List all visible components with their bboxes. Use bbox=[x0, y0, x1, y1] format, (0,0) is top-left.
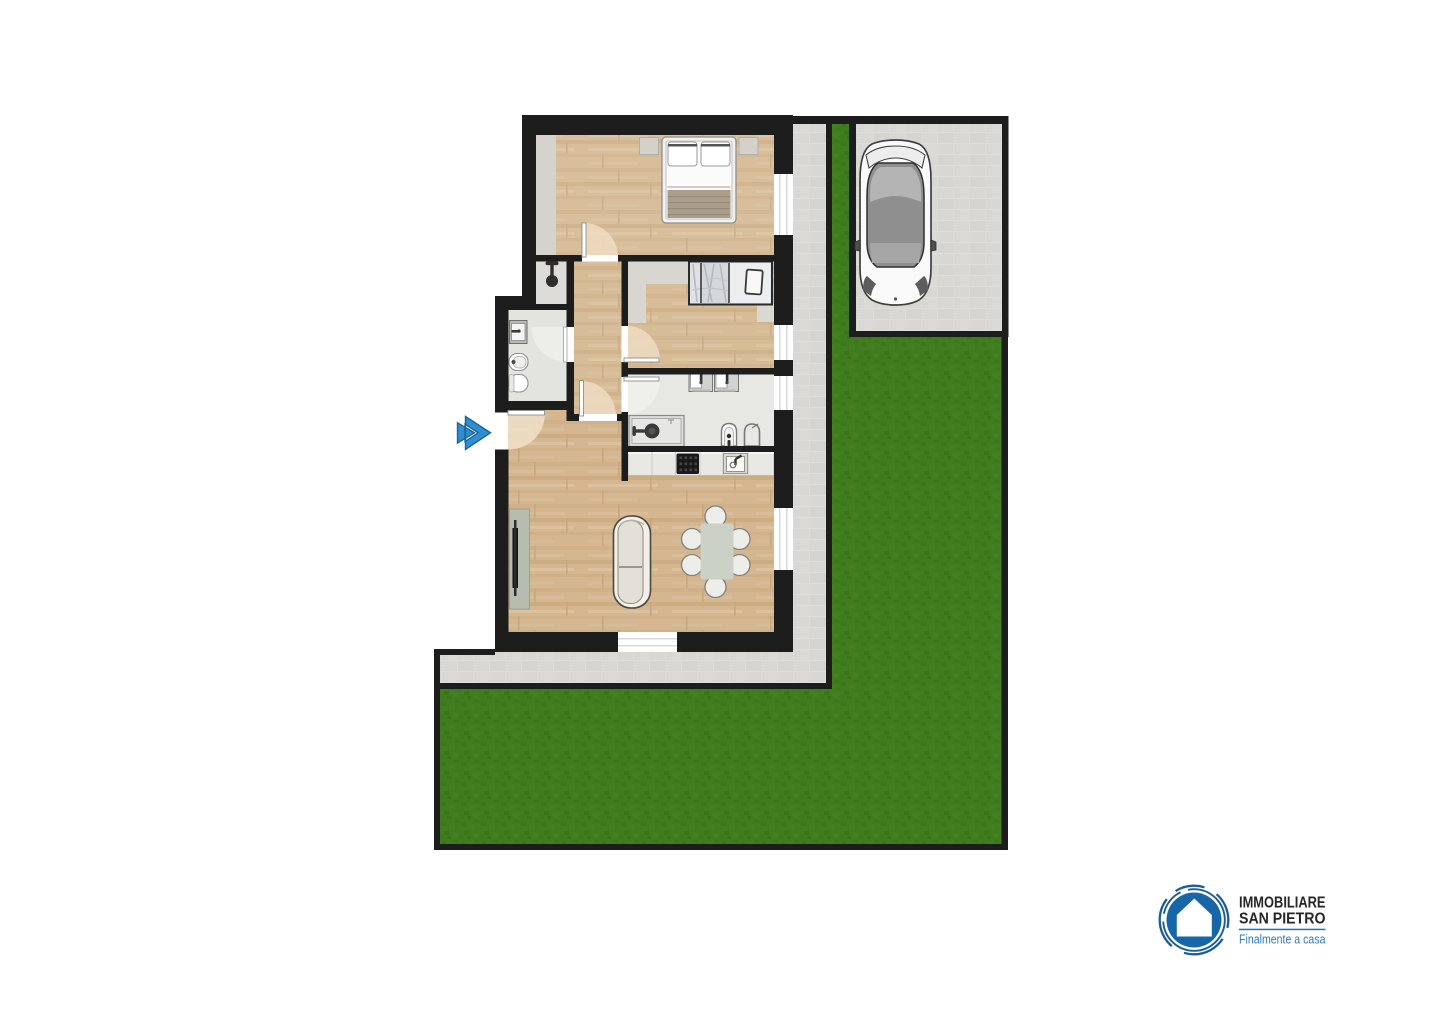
svg-text:Finalmente a casa: Finalmente a casa bbox=[1239, 933, 1326, 947]
svg-text:IMMOBILIARE: IMMOBILIARE bbox=[1239, 895, 1326, 912]
svg-text:SAN PIETRO: SAN PIETRO bbox=[1239, 911, 1326, 928]
